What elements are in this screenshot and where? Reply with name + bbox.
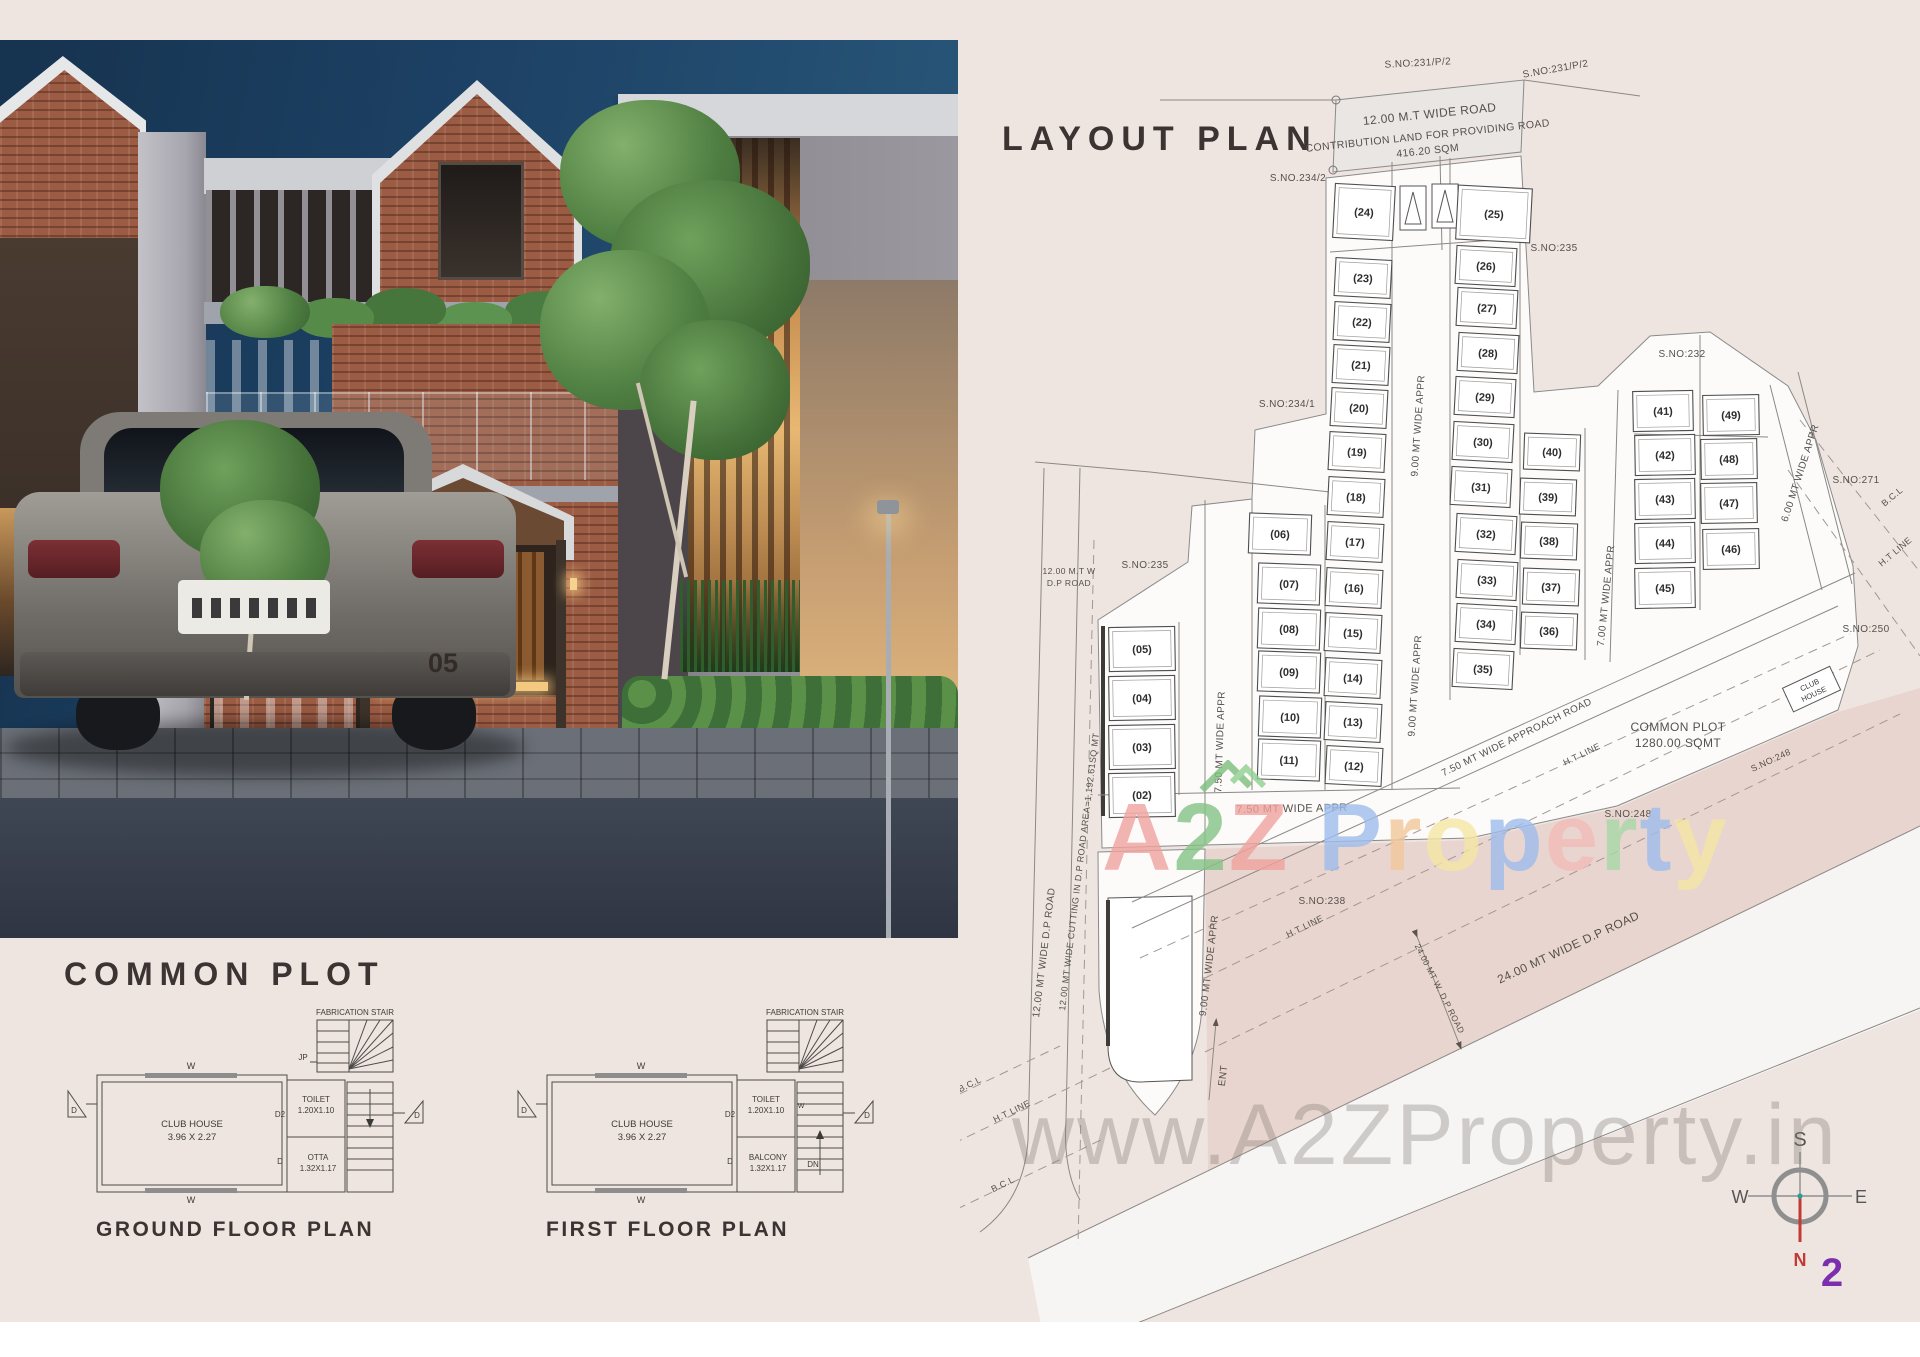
plot-box: (45) — [1635, 567, 1696, 608]
svg-text:(20): (20) — [1349, 402, 1369, 415]
svg-text:D: D — [414, 1111, 420, 1120]
plot-box: (49) — [1703, 395, 1760, 436]
watermark-letter: 2 — [1173, 784, 1228, 891]
svg-text:(14): (14) — [1343, 672, 1363, 685]
plot-box: (39) — [1519, 478, 1576, 516]
first-floor-caption: FIRST FLOOR PLAN — [546, 1218, 789, 1242]
svg-text:(46): (46) — [1721, 544, 1741, 556]
svg-text:(16): (16) — [1344, 582, 1364, 595]
car-taillight-left — [28, 540, 120, 578]
plot-box: (26) — [1455, 245, 1517, 286]
plot-box: (44) — [1635, 522, 1696, 563]
watermark-letter: y — [1673, 784, 1728, 891]
svg-text:(26): (26) — [1476, 260, 1496, 273]
svg-text:(31): (31) — [1471, 481, 1491, 494]
svg-text:(30): (30) — [1473, 436, 1493, 449]
lamp-post — [886, 512, 891, 938]
plot-box: (04) — [1109, 675, 1176, 720]
svg-text:1.32X1.17: 1.32X1.17 — [300, 1164, 337, 1173]
plot-box: (13) — [1324, 702, 1382, 743]
svg-text:CLUB HOUSE: CLUB HOUSE — [161, 1119, 223, 1130]
svg-text:(36): (36) — [1539, 626, 1559, 639]
svg-text:(45): (45) — [1655, 583, 1675, 595]
svg-text:W: W — [1732, 1187, 1749, 1207]
svg-text:FABRICATION STAIR: FABRICATION STAIR — [766, 1008, 844, 1017]
car-taillight-right — [412, 540, 504, 578]
svg-text:(24): (24) — [1354, 206, 1374, 219]
plot-box: (07) — [1257, 563, 1320, 605]
svg-text:(06): (06) — [1270, 529, 1290, 542]
svg-text:D: D — [727, 1157, 733, 1166]
svg-text:1.20X1.10: 1.20X1.10 — [748, 1106, 785, 1115]
porch-post-right — [556, 540, 566, 736]
car-plate-glyphs — [192, 598, 316, 618]
svg-text:CLUB HOUSE: CLUB HOUSE — [611, 1119, 673, 1130]
svg-text:(32): (32) — [1476, 528, 1496, 541]
svg-text:JP: JP — [298, 1053, 307, 1062]
map-label: S.NO:250 — [1842, 624, 1889, 635]
plot-box: (12) — [1325, 746, 1383, 787]
svg-text:3.96 X 2.27: 3.96 X 2.27 — [168, 1132, 217, 1143]
watermark-url: www.A2ZProperty.in — [1012, 1086, 1839, 1185]
svg-text:(07): (07) — [1279, 579, 1299, 592]
svg-text:OTTA: OTTA — [308, 1153, 329, 1162]
plot-box: (38) — [1520, 522, 1577, 560]
common-plot-title: COMMON PLOT — [64, 956, 385, 993]
plot-box: (17) — [1326, 522, 1384, 563]
svg-text:(48): (48) — [1719, 454, 1739, 466]
svg-text:(23): (23) — [1353, 272, 1373, 285]
main-parapet — [204, 158, 394, 194]
svg-text:(18): (18) — [1346, 491, 1366, 504]
svg-text:(37): (37) — [1541, 582, 1561, 595]
svg-text:(08): (08) — [1279, 624, 1299, 637]
svg-text:(22): (22) — [1352, 316, 1372, 329]
plot-box: (37) — [1522, 568, 1579, 606]
plot-box: (43) — [1635, 478, 1696, 519]
svg-text:E: E — [1855, 1187, 1867, 1207]
map-label: S.NO:235 — [1530, 243, 1577, 254]
svg-text:(15): (15) — [1343, 627, 1363, 640]
svg-text:(49): (49) — [1721, 410, 1741, 422]
svg-text:(11): (11) — [1279, 755, 1299, 768]
map-label: D.P ROAD — [1047, 578, 1091, 588]
svg-text:W: W — [637, 1061, 646, 1071]
property-flyer: 05 — [0, 0, 1920, 1357]
map-label: S.NO:231/P/2 — [1384, 56, 1451, 70]
svg-text:(38): (38) — [1539, 536, 1559, 549]
svg-text:1.32X1.17: 1.32X1.17 — [750, 1164, 787, 1173]
svg-text:(27): (27) — [1477, 302, 1497, 315]
plot-box: (36) — [1520, 612, 1577, 650]
lamp-head — [877, 500, 899, 514]
svg-text:3.96 X 2.27: 3.96 X 2.27 — [618, 1132, 667, 1143]
watermark-letter: p — [1484, 784, 1545, 891]
svg-text:(21): (21) — [1351, 359, 1371, 372]
watermark-a2z: A2Z Property — [1102, 790, 1729, 886]
plot-box: (21) — [1332, 345, 1390, 386]
svg-text:(09): (09) — [1279, 667, 1299, 680]
watermark-letter: A — [1102, 784, 1173, 891]
hero-photo: 05 — [0, 40, 958, 938]
svg-text:(29): (29) — [1475, 391, 1495, 404]
svg-text:1.20X1.10: 1.20X1.10 — [298, 1106, 335, 1115]
watermark-letter: Z — [1229, 784, 1290, 891]
plot-box: (34) — [1455, 603, 1517, 644]
map-label: 1280.00 SQMT — [1635, 736, 1721, 750]
svg-text:(10): (10) — [1280, 712, 1300, 725]
svg-text:D: D — [71, 1106, 77, 1115]
hedge — [622, 676, 958, 736]
plot-box: (10) — [1258, 696, 1321, 738]
plot-box: (20) — [1330, 388, 1388, 429]
svg-text:D2: D2 — [275, 1110, 286, 1119]
map-label: S.NO:234/1 — [1259, 399, 1315, 410]
svg-text:D: D — [864, 1111, 870, 1120]
plot-box: (24) — [1333, 183, 1396, 240]
svg-text:(25): (25) — [1484, 208, 1504, 221]
plot-box: (23) — [1334, 258, 1392, 299]
plot-box: (47) — [1701, 483, 1758, 524]
svg-text:TOILET: TOILET — [752, 1095, 780, 1104]
plot-box: (19) — [1328, 432, 1386, 473]
map-label: B.C.L — [1879, 485, 1904, 508]
map-label: COMMON PLOT — [1630, 720, 1725, 734]
plot-box: (05) — [1109, 626, 1176, 671]
plot-box: (22) — [1333, 302, 1391, 343]
svg-text:D: D — [277, 1157, 283, 1166]
map-label: S.NO:231/P/2 — [1522, 58, 1589, 80]
map-label: 12.00 M.T W — [1043, 566, 1096, 576]
svg-text:FABRICATION STAIR: FABRICATION STAIR — [316, 1008, 394, 1017]
gable-window — [438, 162, 524, 280]
map-label: S.NO:238 — [1298, 896, 1345, 907]
svg-text:(44): (44) — [1655, 538, 1675, 550]
plot-box: (03) — [1109, 724, 1176, 769]
map-label: S.NO:235 — [1121, 560, 1168, 571]
map-label: S.NO:232 — [1658, 349, 1705, 360]
plot-box: (42) — [1635, 434, 1696, 475]
house-number: 05 — [428, 648, 458, 679]
svg-text:BALCONY: BALCONY — [749, 1153, 788, 1162]
map-label: 12.00 MT WIDE D.P ROAD — [1031, 887, 1058, 1018]
svg-text:(47): (47) — [1719, 498, 1739, 510]
plot-box: (41) — [1633, 390, 1694, 431]
balcony-plants — [220, 286, 310, 338]
plot-box: (25) — [1456, 185, 1533, 243]
tree-canopy — [640, 320, 790, 460]
svg-text:(13): (13) — [1343, 716, 1363, 729]
svg-text:D: D — [521, 1106, 527, 1115]
plot-box: (35) — [1452, 648, 1514, 689]
plot-box: (09) — [1257, 651, 1320, 693]
svg-text:(03): (03) — [1132, 742, 1152, 754]
plot-box: (48) — [1701, 439, 1758, 480]
plot-box: (28) — [1457, 332, 1519, 373]
plot-box: (40) — [1523, 433, 1580, 471]
svg-text:(28): (28) — [1478, 347, 1498, 360]
map-label: 12.00 MT WIDE CUTTING IN D.P ROAD AREA=1… — [1057, 732, 1101, 1011]
plot-box: (29) — [1454, 376, 1516, 417]
svg-text:(05): (05) — [1132, 644, 1152, 656]
plot-box: (31) — [1450, 466, 1512, 507]
right-grasses — [680, 580, 810, 672]
plot-box: (30) — [1452, 421, 1514, 462]
roof-pergola — [206, 190, 386, 304]
plot-box: (15) — [1324, 613, 1382, 654]
plot-box: (06) — [1248, 513, 1311, 555]
sconce-right — [570, 578, 577, 590]
svg-text:(40): (40) — [1542, 447, 1562, 460]
svg-text:DN: DN — [807, 1160, 819, 1169]
watermark-roof-icon — [1198, 760, 1268, 792]
svg-text:D2: D2 — [725, 1110, 736, 1119]
plot-box: (18) — [1327, 477, 1385, 518]
road-foreground — [0, 798, 958, 938]
svg-text:(04): (04) — [1132, 693, 1152, 705]
svg-text:TOILET: TOILET — [302, 1095, 330, 1104]
plot-box: (32) — [1455, 513, 1517, 554]
watermark-letter: e — [1545, 784, 1600, 891]
svg-text:(34): (34) — [1476, 618, 1496, 631]
plot-box: (33) — [1456, 559, 1518, 600]
watermark-letter: t — [1639, 784, 1673, 891]
plot-box: (46) — [1703, 529, 1760, 570]
svg-text:(35): (35) — [1473, 663, 1493, 676]
map-label: B.C.L — [960, 1074, 983, 1094]
svg-text:W: W — [637, 1195, 646, 1205]
plot-box: (16) — [1325, 568, 1383, 609]
watermark-letter: r — [1600, 784, 1639, 891]
page-number: 2 — [1821, 1251, 1843, 1295]
map-label: S.NO.234/2 — [1270, 173, 1326, 184]
svg-text:(19): (19) — [1347, 446, 1367, 459]
watermark-letter — [1289, 784, 1318, 891]
svg-text:(12): (12) — [1344, 760, 1364, 773]
svg-text:(42): (42) — [1655, 450, 1675, 462]
svg-text:(33): (33) — [1477, 574, 1497, 587]
ground-floor-caption: GROUND FLOOR PLAN — [96, 1218, 374, 1242]
plot-box: (27) — [1456, 287, 1518, 328]
watermark-letter: P — [1318, 784, 1384, 891]
svg-text:(39): (39) — [1538, 492, 1558, 505]
svg-text:N: N — [1794, 1250, 1807, 1270]
plot-box: (08) — [1257, 608, 1320, 650]
svg-text:W: W — [187, 1195, 196, 1205]
svg-text:(41): (41) — [1653, 406, 1673, 418]
plot-box: (14) — [1324, 658, 1382, 699]
footer-margin — [0, 1322, 1920, 1357]
svg-text:W: W — [187, 1061, 196, 1071]
svg-text:(17): (17) — [1345, 536, 1365, 549]
svg-text:(43): (43) — [1655, 494, 1675, 506]
watermark-letter: r — [1384, 784, 1423, 891]
map-label: S.NO:271 — [1832, 475, 1879, 486]
watermark-letter: o — [1423, 784, 1484, 891]
